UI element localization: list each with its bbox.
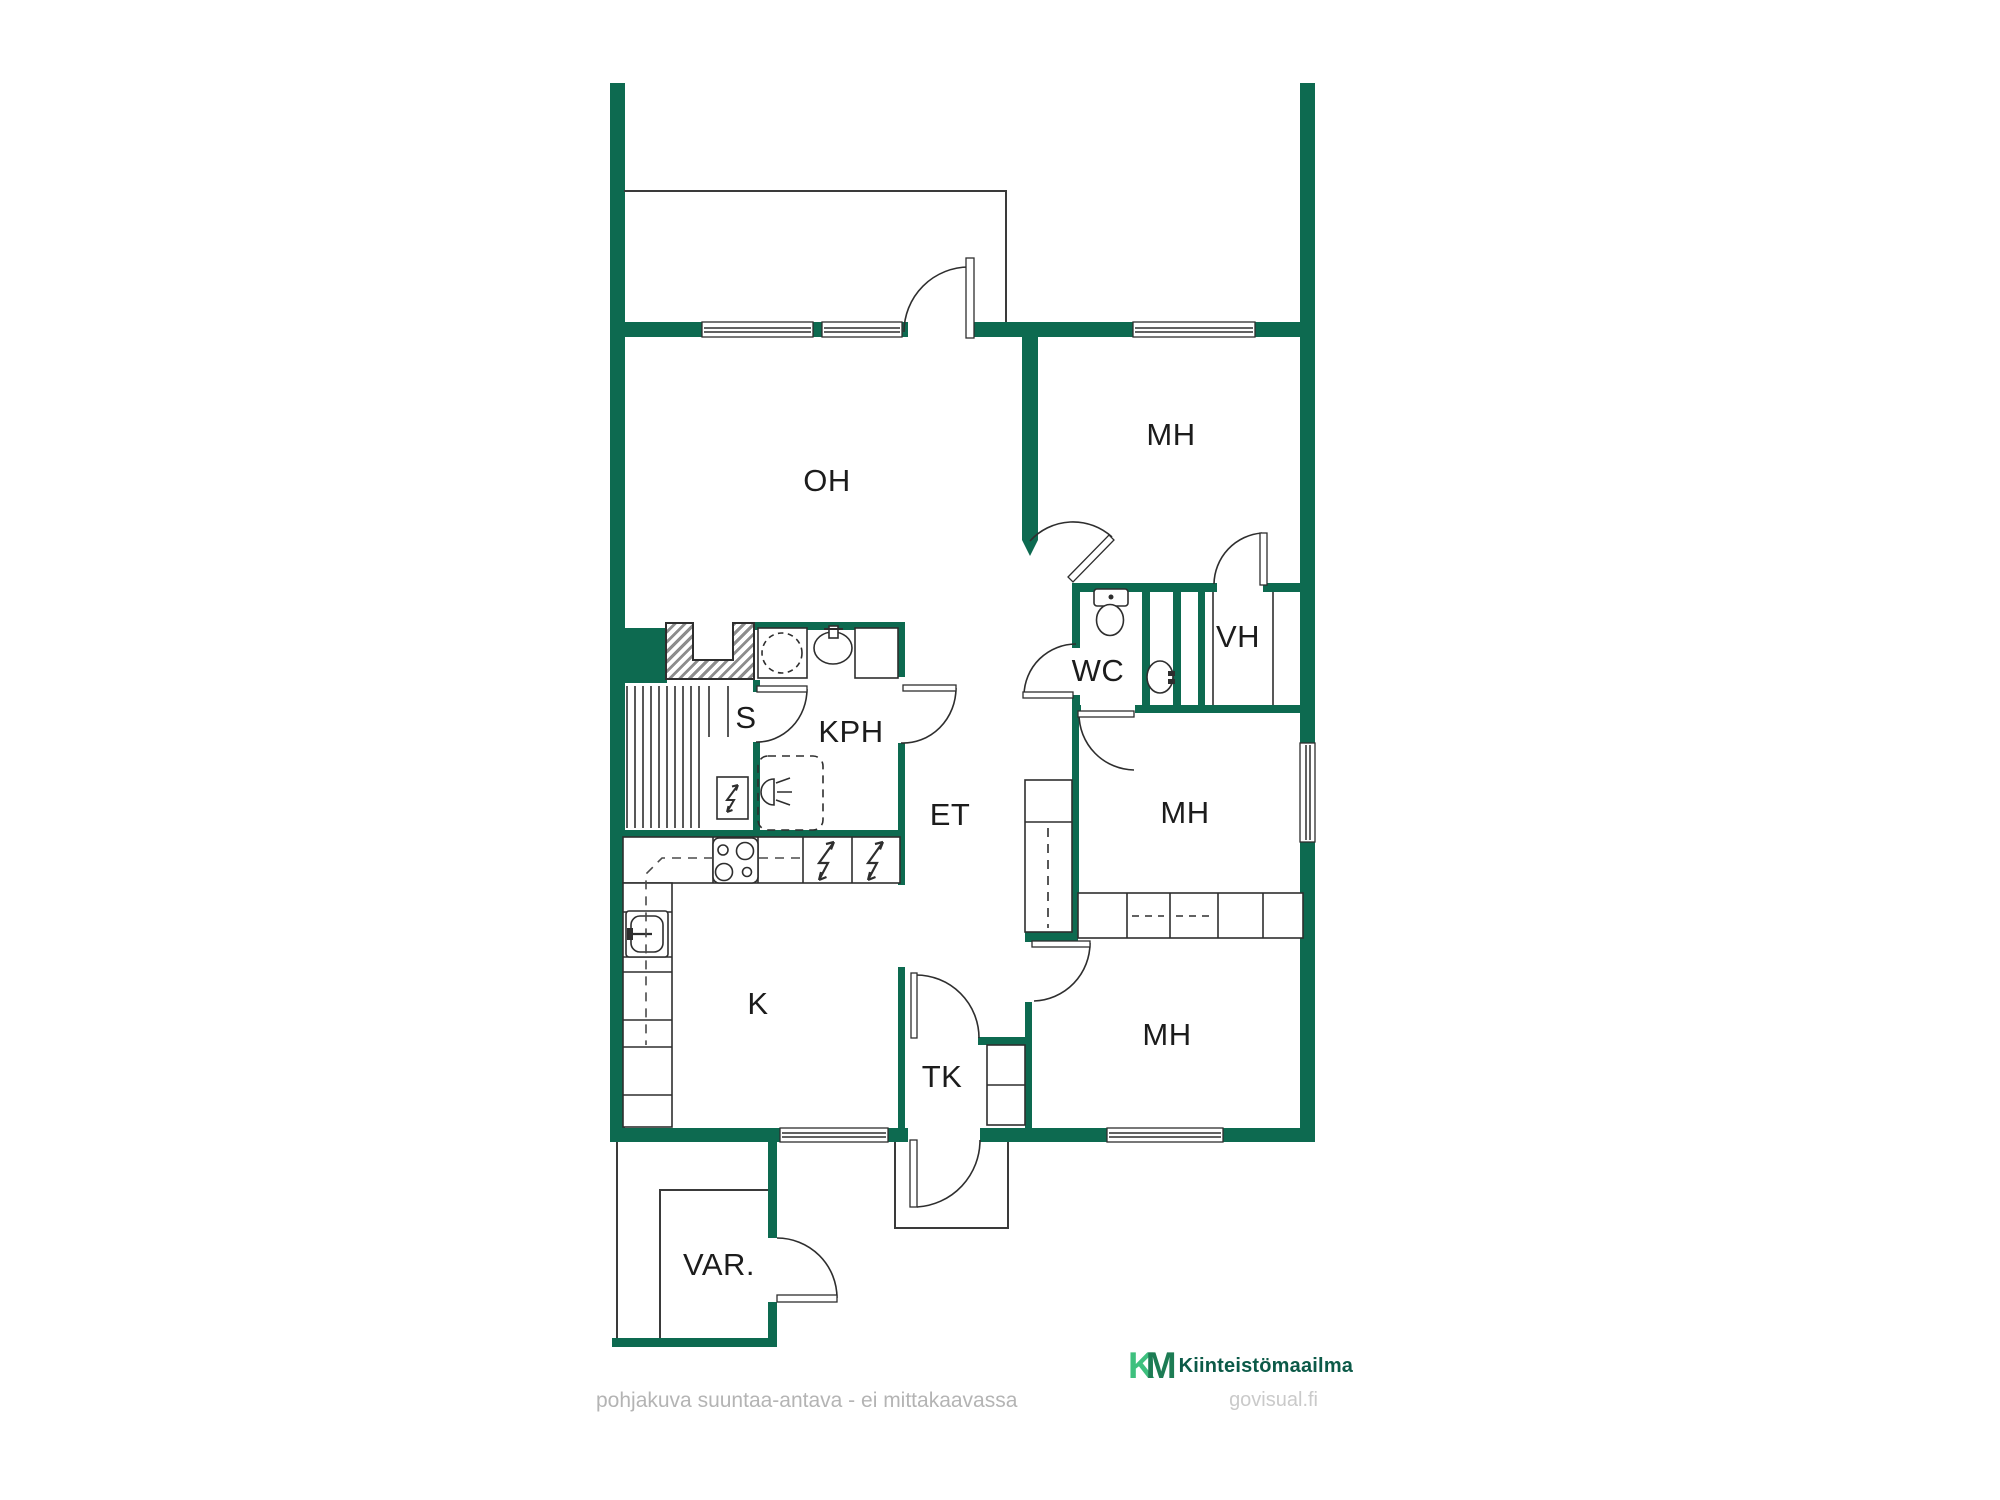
wall-segment (1022, 337, 1038, 540)
wall-segment (898, 630, 905, 677)
vestibule-cabinet (987, 1045, 1025, 1125)
windows (702, 322, 1315, 1142)
watermark: govisual.fi (1160, 1389, 1318, 1412)
wall-segment (753, 742, 760, 830)
wall-segment (1142, 592, 1150, 705)
bathroom-sink-icon (814, 626, 852, 664)
kitchen-sink-icon (626, 911, 668, 957)
chimney-hatch (665, 622, 755, 680)
window (702, 322, 813, 337)
wall-segment (1173, 592, 1181, 705)
window (780, 1128, 888, 1142)
window (1133, 322, 1255, 337)
room-label-entry-hall: ET (930, 797, 971, 833)
wall-segment (610, 628, 667, 683)
window (822, 322, 902, 337)
door-leaf (1068, 535, 1114, 582)
door-leaf (911, 973, 917, 1038)
km-monogram-icon: KM (1128, 1350, 1175, 1382)
sauna-benches-icon (627, 686, 728, 828)
door-leaf (757, 686, 807, 692)
wall-segment (1072, 592, 1080, 648)
window (1107, 1128, 1223, 1142)
room-label-sauna: S (735, 700, 756, 736)
kitchen-counter (623, 837, 900, 883)
room-label-bedroom-top: MH (1146, 417, 1195, 453)
door-arc (1024, 644, 1076, 695)
door-arc (1079, 714, 1134, 770)
room-label-bathroom: KPH (818, 714, 883, 750)
wc-sink-icon (1147, 661, 1175, 693)
floor-plan-page: OH MH WC VH S KPH ET MH K MH TK VAR. poh… (0, 0, 2000, 1500)
wall-segment (768, 1302, 777, 1347)
wall-segment (978, 1037, 1032, 1045)
wall-segment (1025, 1002, 1032, 1128)
room-label-toilet: WC (1072, 653, 1125, 689)
wall-segment (624, 322, 702, 337)
room-label-kitchen: K (747, 986, 768, 1022)
toilet-icon (1094, 589, 1128, 636)
room-label-living-room: OH (803, 463, 851, 499)
room-label-storage: VAR. (683, 1247, 755, 1283)
brand-name: Kiinteistömaailma (1179, 1355, 1354, 1378)
room-label-bedroom-middle: MH (1160, 795, 1209, 831)
door-leaf (1260, 533, 1267, 585)
monogram-m: M (1146, 1345, 1175, 1386)
window (1300, 743, 1315, 842)
wall-segment (888, 1128, 908, 1142)
footer-disclaimer: pohjakuva suuntaa-antava - ei mittakaava… (596, 1389, 1017, 1413)
bathroom-counter (855, 628, 898, 678)
hall-wardrobe (1025, 780, 1072, 932)
wall-segment (980, 1128, 1107, 1142)
door-arc (901, 688, 956, 743)
wall-segment (973, 322, 1133, 337)
door-leaf (777, 1295, 837, 1302)
wall-segment (1300, 83, 1315, 743)
wall-segment (612, 1338, 777, 1347)
wall-segment (1135, 705, 1300, 713)
door-arc (756, 689, 807, 742)
room-label-closet: VH (1216, 619, 1260, 655)
bedroom-wardrobe (1078, 893, 1303, 938)
stove-icon (713, 838, 758, 883)
door-arc (904, 267, 969, 332)
door-arc (917, 1140, 980, 1207)
room-label-bedroom-bottom: MH (1142, 1017, 1191, 1053)
room-label-vestibule: TK (922, 1059, 963, 1095)
door-leaf (910, 1140, 917, 1207)
walls (610, 83, 1315, 1347)
brand-logo: KM Kiinteistömaailma (1128, 1350, 1353, 1382)
door-leaf (966, 258, 974, 338)
door-leaf (903, 685, 956, 691)
washing-machine-icon (758, 628, 807, 678)
wall-segment (813, 322, 822, 337)
wall-segment (1223, 1128, 1315, 1142)
door-leaf (1023, 692, 1073, 698)
wall-segment (1198, 592, 1205, 705)
balcony-outline (624, 191, 1006, 322)
wall-segment (1022, 540, 1038, 556)
door-leaf (1032, 941, 1090, 947)
wall-segment (1300, 842, 1315, 1142)
door-arc (1030, 522, 1112, 541)
wall-segment (768, 1142, 777, 1238)
wall-segment (1255, 322, 1300, 337)
chimney-notch (692, 622, 734, 661)
door-arc (916, 975, 979, 1038)
wall-segment (610, 1128, 780, 1142)
sauna-heater-icon (717, 777, 748, 819)
floor-plan-drawing (0, 0, 2000, 1500)
door-arc (1034, 943, 1090, 1001)
door-arc (777, 1238, 837, 1298)
wall-segment (898, 967, 905, 1128)
wall-segment (1263, 583, 1300, 592)
wall-segment (610, 830, 905, 837)
shower-icon (761, 778, 792, 805)
doors (756, 258, 1267, 1302)
door-leaf (1078, 711, 1134, 717)
door-arc (1214, 533, 1262, 584)
